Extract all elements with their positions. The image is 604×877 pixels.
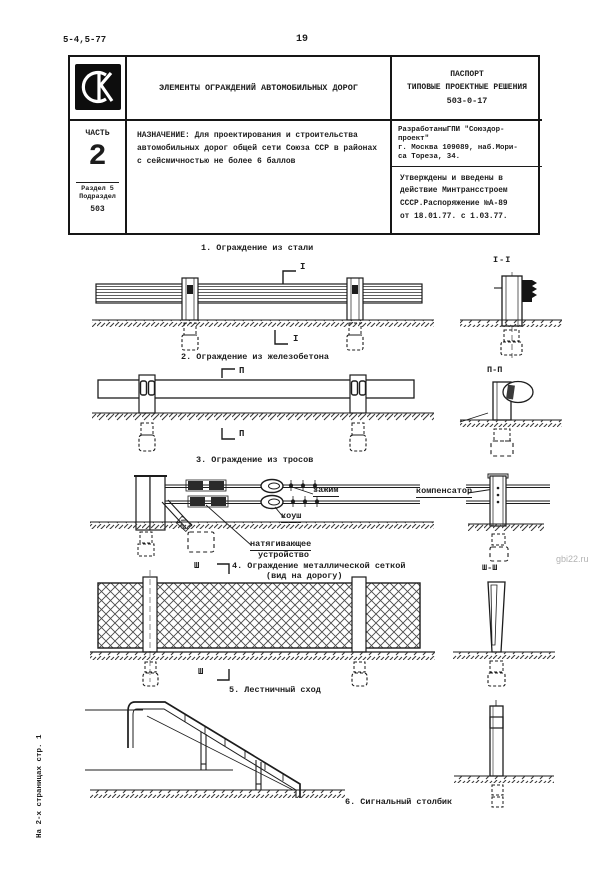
doc-type-cell: ПАСПОРТ ТИПОВЫЕ ПРОЕКТНЫЕ РЕШЕНИЯ 503-0-… [392,57,542,121]
doc-type-line2: ТИПОВЫЕ ПРОЕКТНЫЕ РЕШЕНИЯ [407,83,527,92]
part-label: ЧАСТЬ [70,129,125,138]
fig6-caption: 6. Сигнальный столбик [345,797,452,807]
part-number: 2 [70,142,125,172]
fig2-concrete-guardrail-drawing [88,365,448,460]
title-block: ЭЛЕМЕНТЫ ОГРАЖДЕНИЙ АВТОМОБИЛЬНЫХ ДОРОГ … [68,55,540,235]
doc-code: 5-4,5-77 [63,35,106,45]
fig2-section-view-label: П-П [487,365,502,375]
fig1-caption: 1. Ограждение из стали [201,243,313,253]
doc-type-line1: ПАСПОРТ [450,70,484,79]
watermark: gbi22.ru [556,554,589,564]
fig1-section-view-drawing [458,268,568,360]
document-title: ЭЛЕМЕНТЫ ОГРАЖДЕНИЙ АВТОМОБИЛЬНЫХ ДОРОГ [159,83,358,93]
side-note: На 2-х страницах стр. 1 [36,683,44,838]
doc-number: 503-0-17 [447,96,488,106]
fig4-section-view-drawing [448,575,568,693]
fig6-signal-post-drawing [448,700,568,810]
fig5-caption: 5. Лестничный сход [229,685,321,695]
approval-text: Утверждены и введены в действие Минтранс… [392,167,542,224]
razdel-label: Раздел 5 [76,185,119,193]
razdel-block: Раздел 5 Подраздел 503 [76,182,119,215]
scanned-document-page: 5-4,5-77 19 ЭЛЕМЕНТЫ ОГРАЖДЕНИЙ АВТОМОБИ… [0,0,604,877]
purpose-text: НАЗНАЧЕНИЕ: Для проектирования и строите… [127,121,392,235]
fig5-stairway-drawing [85,698,365,806]
fig2-caption: 2. Ограждение из железобетона [181,352,329,362]
podrazdel-number: 503 [76,205,119,215]
developer-cell: РазработаныГПИ "Союздор- проект" г. Моск… [392,121,542,235]
developer-text: РазработаныГПИ "Союздор- проект" г. Моск… [392,121,542,167]
fig1-section-view-label: I-I [493,255,511,265]
podrazdel-label: Подраздел [76,193,119,201]
logo-cell [70,57,127,121]
fig2-section-view-drawing [458,375,568,460]
logo-sk-icon [75,64,121,110]
fig3-cable-guardrail-drawing [88,468,560,568]
part-cell: ЧАСТЬ 2 Раздел 5 Подраздел 503 [70,121,127,235]
page-number: 19 [296,34,308,45]
fig3-caption: 3. Ограждение из тросов [196,455,313,465]
fig1-steel-guardrail-drawing [88,258,448,364]
